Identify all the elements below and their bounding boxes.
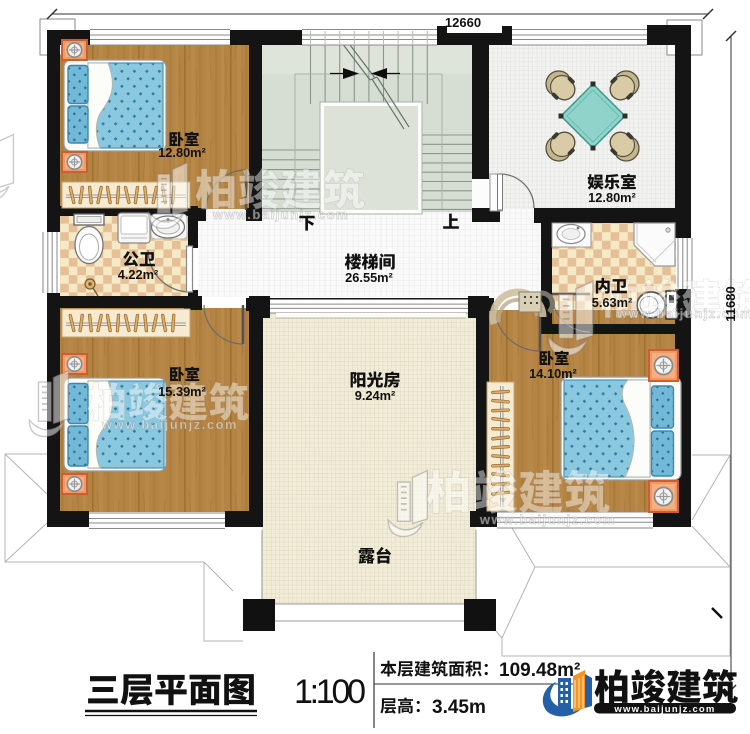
svg-text:www.baijunjz.com: www.baijunjz.com — [613, 704, 715, 715]
svg-text:11680: 11680 — [723, 286, 738, 321]
svg-text:4.22m²: 4.22m² — [118, 267, 159, 282]
svg-text:1:100: 1:100 — [294, 673, 366, 711]
svg-text:12.80m²: 12.80m² — [588, 190, 636, 205]
svg-text:9.24m²: 9.24m² — [355, 388, 396, 403]
svg-text:3.45m: 3.45m — [432, 697, 486, 718]
svg-text:15.39m²: 15.39m² — [158, 384, 206, 399]
svg-text:www.baijunjz.com: www.baijunjz.com — [101, 417, 238, 432]
svg-text:www.baijunjz.com: www.baijunjz.com — [212, 207, 349, 222]
svg-text:109.48m²: 109.48m² — [499, 660, 580, 681]
svg-text:14.10m²: 14.10m² — [529, 366, 577, 381]
svg-text:www.baijunjz.com: www.baijunjz.com — [479, 512, 616, 527]
svg-text:12660: 12660 — [445, 15, 481, 30]
svg-text:5.63m²: 5.63m² — [592, 295, 633, 310]
svg-text:12.80m²: 12.80m² — [158, 145, 206, 160]
svg-text:26.55m²: 26.55m² — [345, 270, 393, 285]
